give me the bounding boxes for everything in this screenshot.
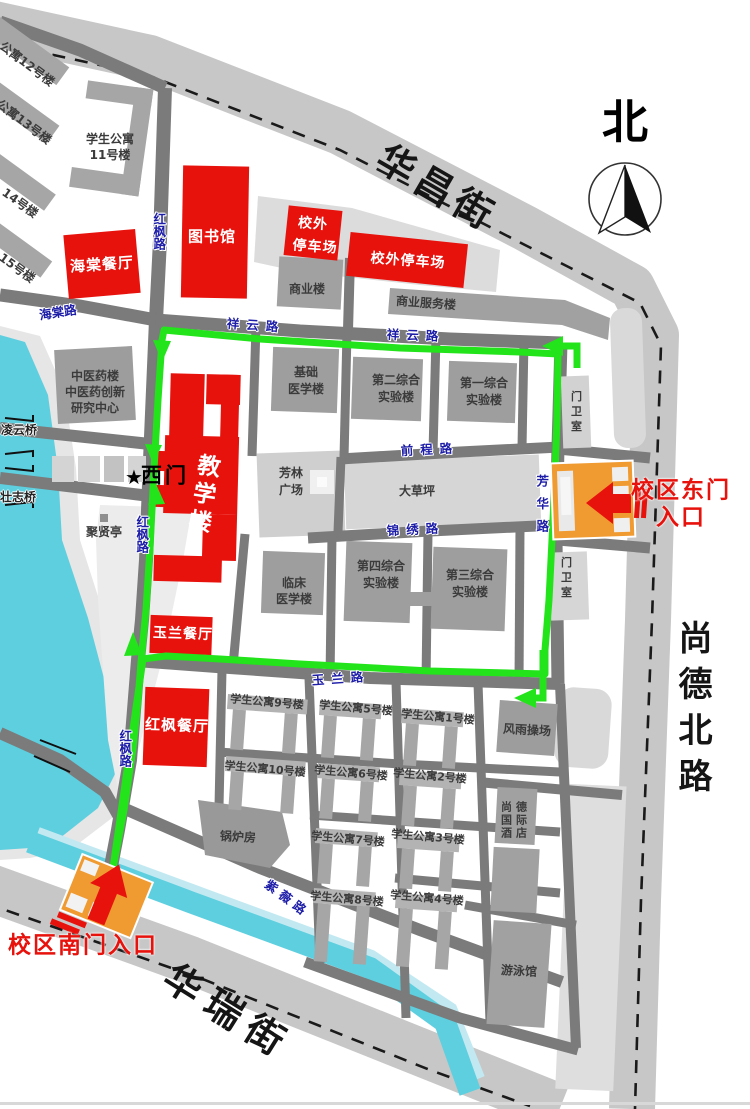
- diyi-label: 实验楼: [466, 394, 502, 406]
- apt-part: [360, 718, 376, 761]
- library-label: 图书馆: [188, 230, 236, 245]
- lab-connector: [406, 592, 434, 606]
- grid-road: [478, 683, 490, 1022]
- menweishi-south-label: 门卫室: [561, 557, 572, 602]
- road-jinxiu-label: 锦绣路: [386, 522, 445, 538]
- parking-small-label: 停车场: [292, 238, 338, 255]
- apt-part: [401, 785, 417, 826]
- kiosk: [52, 456, 74, 482]
- apt-part: [317, 843, 333, 884]
- disi-label: 实验楼: [363, 577, 399, 589]
- grid-road: [344, 333, 347, 458]
- hotel-label: 酒店: [501, 828, 531, 839]
- street-shangdebeilu-label: 尚德北路: [675, 620, 709, 804]
- hotel-label: 国际: [501, 815, 531, 826]
- compass: [589, 163, 661, 235]
- hongfeng-canteen-label: 红枫餐厅: [145, 717, 210, 734]
- road-qiancheng-label: 前程路: [400, 442, 459, 458]
- parking-small-label: 校外: [298, 216, 329, 232]
- disi-label: 第四综合: [357, 560, 405, 572]
- pavilion-icon: [100, 514, 108, 522]
- road-hongfeng-label: 红枫路: [135, 515, 148, 553]
- east-gate-label-line1: 校区东门: [631, 480, 731, 503]
- road-hongfeng-label: 红枫路: [118, 729, 131, 767]
- teaching-part: [169, 373, 205, 438]
- apt-part: [399, 848, 415, 889]
- apt-part: [358, 781, 374, 822]
- dacaoping-label: 大草坪: [399, 485, 435, 497]
- zhongyiyao-label: 研究中心: [71, 402, 119, 414]
- shangye-label: 商业楼: [289, 283, 325, 295]
- east-gate-label-line2: 入口: [656, 507, 706, 530]
- linchuang-label: 临床: [282, 577, 306, 589]
- apt-part: [356, 846, 372, 887]
- page-bottom-rule: [0, 1102, 750, 1105]
- grid-road: [433, 337, 436, 452]
- jichu-building: [271, 347, 339, 413]
- zhongyiyao-label: 中医药楼: [71, 370, 119, 382]
- guolufang-label: 锅炉房: [220, 830, 257, 844]
- natatorium-label: 游泳馆: [501, 964, 538, 978]
- campus-map: 北 华昌街 华瑞街 尚德北路 海棠路 红枫路 红枫路 红枫路 祥云路 祥云路 前…: [0, 0, 750, 1109]
- west-gate-label: 西门: [141, 466, 189, 487]
- kiosk: [78, 456, 100, 482]
- jichu-label: 基础: [294, 366, 318, 378]
- dorm11-label: 11号楼: [90, 149, 131, 161]
- yulan-canteen-label: 玉兰餐厅: [153, 626, 213, 642]
- road-xiangyun-label: 祥云路: [387, 329, 446, 344]
- east-gate-booth-inner: [560, 477, 571, 515]
- apt-part: [282, 713, 298, 754]
- apt-part: [228, 771, 244, 810]
- diyi-label: 第一综合: [460, 377, 508, 389]
- east-pill-strip: [610, 307, 647, 448]
- hotel-label: 尚德: [501, 802, 531, 813]
- dier-label: 第二综合: [372, 374, 420, 386]
- haitang-canteen-label: 海棠餐厅: [70, 255, 135, 274]
- hotel-building-south: [490, 847, 539, 913]
- compass-north-label: 北: [602, 99, 648, 145]
- teaching-part: [153, 555, 222, 583]
- dacaoping-lawn: [344, 455, 541, 530]
- bridge-zhuangzhi-label: 壮志桥: [0, 491, 36, 503]
- dier-label: 实验楼: [378, 391, 414, 403]
- grid-road: [330, 535, 332, 679]
- south-gate-label: 校区南门入口: [8, 935, 158, 958]
- diyi-building: [447, 361, 517, 423]
- dorm11-label: 学生公寓: [86, 133, 134, 145]
- apt-part: [440, 788, 456, 829]
- grid-road: [426, 532, 428, 682]
- fanglin-label: 广场: [279, 484, 303, 496]
- apt-part: [438, 851, 454, 892]
- apt-part: [319, 778, 335, 819]
- jichu-label: 医学楼: [288, 383, 324, 395]
- apt-part: [403, 723, 419, 766]
- grid-road: [252, 326, 256, 456]
- disan-label: 实验楼: [452, 586, 488, 598]
- east-gate-block: [612, 467, 628, 482]
- fengyu-label: 风雨操场: [503, 723, 552, 737]
- road-hongfeng-label: 红枫路: [152, 212, 165, 250]
- apt-part: [321, 715, 337, 758]
- fanglin-label: 芳林: [279, 467, 303, 479]
- apt-part: [435, 911, 452, 970]
- road-fanghua-label: 芳华路: [535, 474, 548, 542]
- zhongyiyao-label: 中医药创新: [65, 386, 125, 398]
- kiosk: [104, 456, 124, 482]
- juxianting-label: 聚贤亭: [86, 526, 122, 538]
- bridge-lingyun-label: 凌云桥: [1, 424, 37, 436]
- disan-label: 第三综合: [446, 569, 494, 581]
- apt-part: [230, 709, 246, 750]
- linchuang-label: 医学楼: [276, 593, 312, 605]
- menweishi-north-label: 门卫室: [571, 391, 582, 436]
- dier-building: [351, 357, 423, 421]
- grid-road: [522, 340, 524, 448]
- fountain-center: [317, 477, 327, 487]
- east-gate-block: [614, 518, 630, 533]
- grid-road: [338, 457, 341, 532]
- apt-part: [280, 775, 296, 814]
- grid-road: [519, 528, 520, 684]
